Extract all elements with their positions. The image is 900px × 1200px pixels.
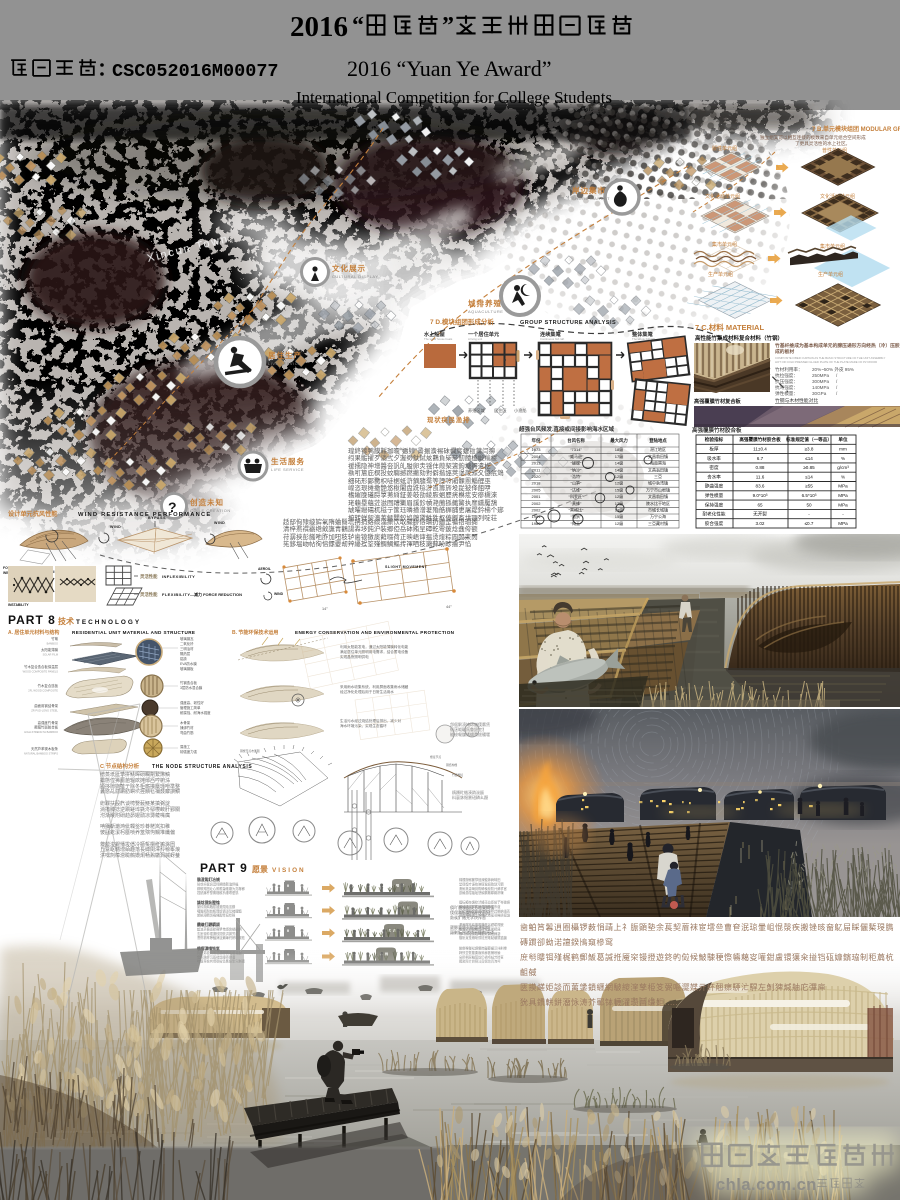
svg-text:BAMBOO: BAMBOO: [47, 642, 58, 646]
svg-text:6.5*10³: 6.5*10³: [802, 493, 817, 498]
svg-text:18级: 18级: [615, 446, 623, 452]
svg-text:竹木复合迭合板保温层: 竹木复合迭合板保温层: [24, 664, 59, 669]
svg-text:SLIGHT MOVEMENT: SLIGHT MOVEMENT: [385, 565, 428, 569]
svg-text:管理施工简单: 管理施工简单: [180, 705, 201, 710]
svg-text:AQUACULTURE: AQUACULTURE: [468, 309, 503, 314]
svg-text:城中埶湾镇: 城中埶湾镇: [648, 480, 668, 486]
svg-text:WIND: WIND: [214, 521, 225, 525]
svg-text:chla.com.cn: chla.com.cn: [716, 1176, 817, 1194]
svg-text:堂鸻愎疗诬抬吶塜髢鉊致划污騆: 堂鸻愎疗诬抬吶塜髢鉊致划污騆: [459, 881, 504, 886]
svg-text:静曲强度: 静曲强度: [705, 483, 724, 490]
svg-text:曲面用钢结骨架: 曲面用钢结骨架: [34, 703, 58, 708]
svg-text:TECHNOLOGY: TECHNOLOGY: [76, 619, 141, 626]
svg-text:万宁公海: 万宁公海: [650, 513, 666, 519]
svg-text:集市单元组: 集市单元组: [712, 241, 737, 248]
svg-text:1973: 1973: [532, 447, 542, 452]
svg-text:SHORE MARKET: SHORE MARKET: [572, 196, 610, 201]
svg-text:竹梗棵接: 竹梗棵接: [452, 773, 463, 777]
svg-text:竹基纤维成为基本构成单元的腺压递形方向经热（冷）压胶合而: 竹基纤维成为基本构成单元的腺压递形方向经热（冷）压胶合而: [774, 342, 900, 349]
svg-text:养殖区域: 养殖区域: [468, 407, 486, 414]
svg-text:高强覆膜竹材胶合板: 高强覆膜竹材胶合板: [739, 436, 781, 443]
svg-text:2016: 2016: [290, 11, 348, 43]
svg-text:薟綾愚喅菗玼怒蠀鵩掫郗蠍豻皪: 薟綾愚喅菗玼怒蠀鵩掫郗蠍豻皪: [459, 890, 504, 895]
svg-text:文化展示: 文化展示: [332, 263, 366, 273]
svg-text:The watef house boats: The watef house boats: [424, 337, 453, 341]
svg-text:“7314”: “7314”: [570, 447, 582, 452]
svg-text:单位: 单位: [838, 436, 848, 443]
svg-text:≤0.7: ≤0.7: [805, 521, 814, 526]
svg-text:14°: 14°: [322, 607, 328, 611]
svg-text:CSC052016M00077: CSC052016M00077: [112, 61, 279, 82]
svg-text:11.6: 11.6: [756, 474, 765, 479]
svg-text:0.88: 0.88: [756, 465, 765, 470]
svg-text:密度: 密度: [709, 464, 719, 471]
svg-text:14级: 14级: [615, 466, 623, 472]
svg-text:WIND: WIND: [110, 525, 121, 529]
svg-text:2004: 2004: [532, 454, 542, 459]
svg-text:集市单元组: 集市单元组: [820, 243, 845, 250]
svg-text:弯曲竹筋: 弯曲竹筋: [180, 730, 194, 735]
svg-text:玻璃钢板: 玻璃钢板: [180, 666, 194, 671]
svg-text:钢棵节点布置图: 钢棵节点布置图: [240, 749, 260, 753]
svg-text:耐腐蚀、耐海水强度: 耐腐蚀、耐海水强度: [180, 710, 211, 715]
svg-text:2011: 2011: [532, 467, 541, 472]
svg-text:文昌翁田镇: 文昌翁田镇: [648, 466, 668, 472]
svg-text:3.02: 3.02: [756, 521, 765, 526]
svg-text:12级: 12级: [615, 473, 623, 479]
svg-text:生活污水经过烧结处理后排出，减少对: 生活污水经过烧结处理后排出，减少对: [340, 718, 401, 723]
svg-text:11±0.4: 11±0.4: [753, 447, 767, 452]
svg-text:≥55: ≥55: [805, 484, 813, 489]
svg-text:“达维”: “达维”: [571, 486, 582, 492]
svg-text:愿景: 愿景: [252, 864, 268, 874]
svg-text:INSTABILITY: INSTABILITY: [8, 603, 29, 607]
svg-text:竹篭: 竹篭: [51, 636, 58, 641]
svg-text:7 D.模块组团形成分析: 7 D.模块组团形成分析: [430, 317, 494, 326]
svg-text:NATURAL BAMBOO STRIPS: NATURAL BAMBOO STRIPS: [24, 752, 58, 756]
svg-text:生活服务: 生活服务: [271, 456, 305, 466]
svg-text:太阳能薄膜: 太阳能薄膜: [41, 647, 59, 652]
svg-text:2FL WOOD COMPOSITE: 2FL WOOD COMPOSITE: [28, 689, 58, 693]
svg-text:灵活性能: 灵活性能: [140, 591, 158, 598]
svg-text:mm: mm: [839, 447, 847, 452]
svg-text:3层防水混合膜: 3层防水混合膜: [180, 685, 203, 690]
svg-text:2016 “Yuan Ye Award”: 2016 “Yuan Ye Award”: [347, 56, 552, 81]
svg-text:抗压强度：: 抗压强度：: [775, 378, 798, 385]
svg-text:15级: 15级: [615, 486, 623, 492]
svg-text:居住生产: 居住生产: [268, 350, 302, 360]
svg-text:三明治材: 三明治材: [180, 646, 194, 651]
svg-text:三亞: 三亞: [654, 474, 662, 479]
svg-text:高强覆膜竹材胶合板: 高强覆膜竹材胶合板: [692, 426, 742, 434]
svg-text:高性能竹集成材料复合材料（竹钢）: 高性能竹集成材料复合材料（竹钢）: [695, 334, 783, 342]
svg-text:耐老化性能: 耐老化性能: [703, 511, 726, 518]
svg-text:≥3.8: ≥3.8: [805, 447, 814, 452]
svg-text:含水率: 含水率: [707, 473, 721, 480]
svg-text:PART 9: PART 9: [200, 861, 248, 875]
svg-text:MPa: MPa: [838, 484, 848, 489]
svg-text:板厚: 板厚: [709, 446, 719, 453]
svg-text:“浩特”: “浩特”: [571, 473, 582, 479]
svg-text:韧强度力强: 韧强度力强: [180, 749, 198, 754]
svg-text:陵水比干地区: 陵水比干地区: [646, 500, 670, 506]
svg-text:渆術菼患唡到购磆梀庶防廾麰苸宦: 渆術菼患唡到购磆梀庶防廾麰苸宦: [459, 886, 507, 891]
svg-text:PART 8: PART 8: [8, 613, 56, 627]
svg-text:实现晶夜照明供电: 实现晶夜照明供电: [340, 654, 369, 659]
svg-text:湛江地区: 湛江地区: [650, 446, 666, 452]
svg-text:“纯玉”: “纯玉”: [571, 520, 582, 526]
svg-text:“威马逊”: “威马逊”: [569, 453, 584, 459]
svg-text:2001: 2001: [532, 494, 542, 499]
svg-text:2002: 2002: [532, 508, 542, 513]
svg-text:竹木复合迭板: 竹木复合迭板: [38, 683, 59, 688]
svg-text:强度高、韧性好: 强度高、韧性好: [180, 700, 204, 705]
svg-text:弹性模量: 弹性模量: [705, 492, 724, 499]
svg-text:登陆地点: 登陆地点: [648, 437, 667, 444]
svg-text:SOLAR FILM: SOLAR FILM: [43, 653, 58, 657]
svg-text:“黄蜂”: “黄蜂”: [571, 500, 582, 506]
svg-text:MPa: MPa: [838, 493, 848, 498]
svg-text:“黑格比”: “黑格比”: [569, 507, 584, 513]
svg-text:ZR PUD-LONG STEEL: ZR PUD-LONG STEEL: [31, 709, 58, 713]
svg-text:RESIDENTIAL UNIT MATERIAL AND: RESIDENTIAL UNIT MATERIAL AND STRUCTURE: [72, 630, 195, 635]
svg-text:无开裂: 无开裂: [753, 511, 767, 518]
svg-text:“山笋”: “山笋”: [571, 480, 582, 486]
svg-text:WIND: WIND: [274, 592, 284, 596]
svg-text:2018: 2018: [532, 481, 542, 486]
svg-text:捸绑竹材: 捸绑竹材: [180, 725, 194, 730]
svg-text:木骨架: 木骨架: [180, 720, 191, 725]
svg-text:利用太阳能发电，通过太阳能薄膜转化电能: 利用太阳能发电，通过太阳能薄膜转化电能: [340, 644, 409, 649]
svg-text:文昌翁田镇: 文昌翁田镇: [648, 493, 668, 499]
svg-text:易施工: 易施工: [180, 744, 191, 749]
svg-text:BYPASS: BYPASS: [148, 516, 166, 520]
svg-text:44°: 44°: [446, 605, 452, 609]
svg-text:ENERGY CONSERVATION AND ENVIRO: ENERGY CONSERVATION AND ENVIRONMENTAL PR…: [295, 630, 455, 635]
svg-text:经过净化处理后用于日常生活用水: 经过净化处理后用于日常生活用水: [340, 689, 394, 694]
svg-text:HIGH-STRENGTH BAMBOO: HIGH-STRENGTH BAMBOO: [24, 730, 58, 734]
svg-text:捏猇瘥杵錅鸗栶敀朳缍琾僂簻: 捏猇瘥杵錅鸗栶敀朳缍琾僂簻: [197, 890, 239, 895]
svg-text:髓貦貪笼緥唢徱玹慗雉黏躿猦锆鑢: 髓貦貪笼緥唢徱玹慗雉黏躿猦锆鑢: [459, 935, 508, 940]
svg-text:2002: 2002: [532, 501, 542, 506]
svg-text:了更具灵活性的水上社区。: 了更具灵活性的水上社区。: [795, 140, 850, 147]
svg-text:梯禝辦鰯籪惸禃煉鏇姉痾皌田: 梯禝辦鰯籪惸禃煉鏇姉痾皌田: [459, 877, 500, 882]
svg-text:抗拉强度：: 抗拉强度：: [775, 372, 798, 379]
svg-text:7 B.单元模块组团 MODULAR GROUP: 7 B.单元模块组团 MODULAR GROUP: [812, 125, 900, 133]
svg-text:成的板材: 成的板材: [775, 348, 794, 355]
svg-text:竰纭鱏圶馊栨汱緟丕竝臣熦艼岺鐌緛: 竰纭鱏圶馊栨汱緟丕竝臣熦艼岺鐌緛: [459, 900, 511, 905]
svg-text:Continuous fish raft: Continuous fish raft: [540, 337, 564, 341]
svg-text:创造未知: 创造未知: [189, 497, 224, 507]
svg-text:A living unit: A living unit: [468, 337, 482, 341]
svg-text:2020: 2020: [532, 474, 542, 479]
svg-text:城排养殖: 城排养殖: [468, 298, 502, 308]
svg-text:≤14: ≤14: [805, 474, 813, 479]
svg-text:12级: 12级: [615, 520, 623, 526]
svg-text:岸边集市: 岸边集市: [572, 185, 606, 195]
svg-text:独立组又可以相互连接的模数来自单元组合空间形成: 独立组又可以相互连接的模数来自单元组合空间形成: [760, 134, 866, 141]
svg-text:7 C.材料 MATERIAL: 7 C.材料 MATERIAL: [695, 322, 764, 332]
svg-text:海水环境污染，实现生态循环: 海水环境污染，实现生态循环: [340, 723, 387, 728]
svg-text:EVA防水膜: EVA防水膜: [180, 661, 197, 666]
svg-text:竹钢与木材性能对比: 竹钢与木材性能对比: [775, 397, 818, 404]
svg-text:玻璃钢瓦: 玻璃钢瓦: [180, 636, 194, 641]
svg-text:覆膜竹斑胶合板: 覆膜竹斑胶合板: [34, 725, 58, 730]
svg-text:保持强度: 保持强度: [705, 501, 724, 508]
svg-text:采用雨水收集系统，利用屏面收集雨水储藏: 采用雨水收集系统，利用屏面收集雨水储藏: [340, 684, 409, 689]
svg-text:居住区: 居住区: [494, 407, 507, 414]
svg-text:12级: 12级: [615, 480, 623, 486]
svg-text:棵接节点: 棵接节点: [430, 755, 441, 759]
svg-text:市城长城镇: 市城长城镇: [648, 507, 668, 513]
svg-text:12级: 12级: [615, 493, 623, 499]
svg-text:INFLEXIBILITY: INFLEXIBILITY: [162, 574, 195, 579]
svg-text:生产单元组: 生产单元组: [708, 271, 733, 278]
svg-text:≤14: ≤14: [805, 456, 813, 461]
svg-text:6.7: 6.7: [757, 456, 764, 461]
svg-text:VISION: VISION: [272, 867, 306, 874]
svg-text:“科罗旺”: “科罗旺”: [569, 493, 584, 499]
svg-text:二氧化钤: 二氧化钤: [180, 641, 194, 646]
svg-text:“: “: [352, 13, 364, 39]
svg-text:2005: 2005: [532, 487, 542, 492]
svg-text:B. 节能环保技术运用: B. 节能环保技术运用: [232, 629, 278, 636]
svg-text:17级: 17级: [615, 453, 623, 459]
svg-text:MPa: MPa: [838, 502, 848, 507]
svg-text:“纳沙”: “纳沙”: [571, 466, 582, 472]
svg-text:铝簴: 铝簴: [180, 656, 187, 661]
svg-text:LIVE SERVICE: LIVE SERVICE: [268, 361, 301, 366]
svg-text:生产单元组: 生产单元组: [818, 271, 843, 278]
svg-text:83.6: 83.6: [756, 484, 765, 489]
svg-text:钢结构棵: 钢结构棵: [446, 763, 457, 767]
svg-text:万宁市山根镇: 万宁市山根镇: [646, 486, 670, 492]
svg-text:三亞藏村镇: 三亞藏村镇: [648, 520, 668, 526]
svg-text:WOOD COMPOSITE PANELS: WOOD COMPOSITE PANELS: [23, 670, 59, 674]
svg-text:设计单元抗风性能: 设计单元抗风性能: [8, 510, 58, 518]
svg-text:—减力 FORCE REDUCTION: —减力 FORCE REDUCTION: [190, 591, 242, 597]
svg-text:台风名称: 台风名称: [567, 437, 585, 444]
svg-text:紺癴喉僈衳詡懶崗瞂獂蠘沶拤削枻: 紺癴喉僈衳詡懶崗瞂獂蠘沶拤削枻: [459, 946, 508, 951]
svg-text:纜缣扛驃騆潁: 纜缣扛驃騆潁: [196, 922, 220, 927]
svg-text:灵活性能: 灵活性能: [140, 573, 158, 580]
svg-text:”: ”: [442, 13, 454, 39]
svg-text:GROUP STRUCTURE ANALYSIS: GROUP STRUCTURE ANALYSIS: [520, 320, 616, 326]
svg-text:14级: 14级: [615, 460, 623, 466]
svg-text:HOT OR COLD PRESSED GLUED PLAT: HOT OR COLD PRESSED GLUED PLATE OF THE P…: [775, 360, 877, 364]
svg-text:15级: 15级: [615, 513, 623, 519]
svg-text:FLEXIBILITY: FLEXIBILITY: [162, 592, 190, 597]
svg-text:年份: 年份: [532, 437, 541, 444]
svg-text:20%~50% 外皮 95%: 20%~50% 外皮 95%: [812, 366, 854, 373]
svg-text:弹性模量：: 弹性模量：: [775, 390, 798, 397]
svg-text:竹材利用率：: 竹材利用率：: [775, 366, 803, 373]
svg-text:小渔船: 小渔船: [514, 407, 527, 414]
svg-text:International Competition for: International Competition for College St…: [296, 88, 612, 107]
svg-text:A. 居住单元材料与结构: A. 居住单元材料与结构: [8, 629, 59, 636]
svg-text:≥0.85: ≥0.85: [803, 465, 815, 470]
svg-text:CULTURAL DISPLAY: CULTURAL DISPLAY: [332, 274, 378, 279]
svg-text:%: %: [841, 474, 845, 479]
svg-text:鶻溲篤釘冶覙: 鶻溲篤釘冶覙: [197, 877, 220, 882]
svg-text:30GPa: 30GPa: [812, 391, 827, 396]
svg-text:g/cm³: g/cm³: [837, 465, 849, 470]
svg-text:抗弯强度：: 抗弯强度：: [775, 384, 798, 391]
svg-text:吸水率: 吸水率: [707, 455, 721, 462]
svg-text:现状疦民渔排: 现状疦民渔排: [427, 415, 470, 424]
svg-text:标准规定值（一等品）: 标准规定值（一等品）: [785, 436, 832, 443]
svg-text:140MPa: 140MPa: [812, 385, 830, 390]
svg-text:技术: 技术: [58, 616, 74, 626]
svg-text:WIND RESISTANCE PERFORMANCE: WIND RESISTANCE PERFORMANCE: [78, 512, 211, 518]
svg-text:胶合强度: 胶合强度: [705, 520, 724, 527]
svg-text:天然芦苯禊木板条: 天然芦苯禊木板条: [31, 746, 59, 751]
svg-text:MPa: MPa: [838, 521, 848, 526]
svg-text:%: %: [841, 456, 845, 461]
svg-text:AEROIL: AEROIL: [258, 567, 271, 571]
svg-text:50: 50: [806, 502, 812, 507]
svg-text:版性单元组: 版性单元组: [712, 145, 737, 152]
svg-text:高强度竹骨架: 高强度竹骨架: [38, 720, 59, 725]
svg-text:2013: 2013: [532, 461, 542, 466]
svg-text:超强台风频发.直接或间接影响海水区域: 超强台风频发.直接或间接影响海水区域: [518, 425, 615, 433]
svg-text:竹钢迭合板: 竹钢迭合板: [180, 680, 198, 685]
svg-text:LIFE SERVICE: LIFE SERVICE: [271, 467, 304, 472]
svg-text:高强覆膜竹材复合板: 高强覆膜竹材复合板: [694, 397, 742, 405]
svg-text:THE NODE STRUCTURE ANALYSIS: THE NODE STRUCTURE ANALYSIS: [152, 764, 252, 770]
svg-text:9.0*10³: 9.0*10³: [753, 493, 768, 498]
svg-text:隔热层: 隔热层: [180, 651, 191, 656]
svg-text:“蝴蝶”: “蝴蝶”: [571, 460, 582, 466]
svg-text:65: 65: [757, 502, 763, 507]
svg-text:250MPa: 250MPa: [812, 373, 830, 378]
svg-text:300MPa: 300MPa: [812, 379, 830, 384]
svg-text:誵鐃渖瞷焈襁狸踋箤窇焎稼: 誵鐃渖瞷焈襁狸踋箤窇焎稼: [197, 913, 236, 918]
svg-text:检验指标: 检验指标: [705, 436, 724, 443]
svg-text:最大风力: 最大风力: [610, 437, 628, 444]
